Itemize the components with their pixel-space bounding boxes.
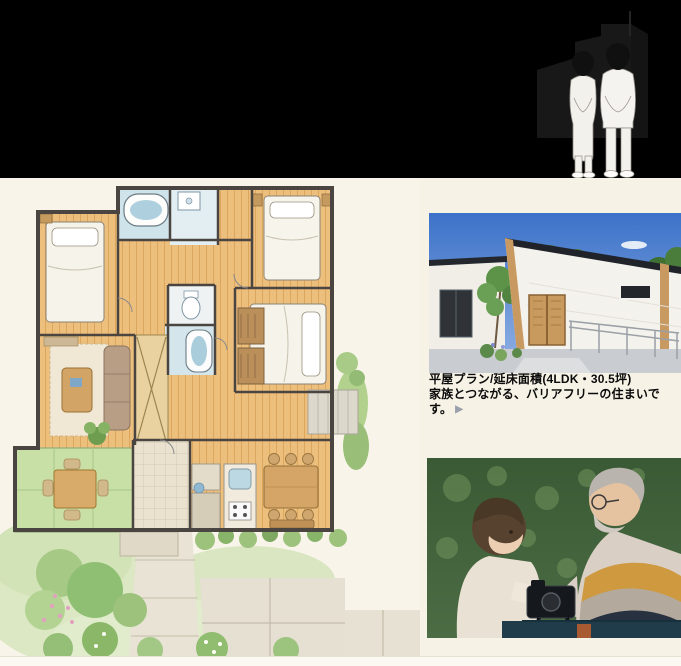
caption-line2: 家族とつながる、バリアフリーの住まいです。▶ [429, 387, 679, 418]
entrance-hall [133, 440, 190, 530]
caption-line1: 平屋プラン/延床面積(4LDK・30.5坪) [429, 372, 679, 387]
entry-steps [513, 358, 591, 373]
entrance-step [120, 532, 178, 556]
living-room [44, 337, 130, 445]
caption-arrow-icon: ▶ [455, 402, 463, 417]
elderly-couple-illustration [527, 6, 652, 178]
family-photo[interactable] [427, 458, 681, 638]
bench [502, 621, 681, 638]
bathroom-area [118, 188, 218, 245]
bedroom-mid-right [238, 304, 326, 384]
floor-plan-svg [0, 178, 420, 666]
kitchen [192, 464, 256, 530]
page-header [0, 0, 681, 178]
tatami-room [15, 448, 133, 532]
bag [577, 624, 591, 638]
family-photo-graphic [427, 458, 681, 638]
bedroom-top-right [252, 194, 331, 280]
exterior-photo-graphic [429, 213, 681, 373]
floor-plan-illustration [0, 178, 420, 666]
next-section-strip [0, 656, 681, 666]
couple-with-house-icon [527, 6, 652, 178]
storage-closet [135, 335, 168, 443]
plan-caption[interactable]: 平屋プラン/延床面積(4LDK・30.5坪) 家族とつながる、バリアフリーの住ま… [429, 372, 679, 418]
bedroom-left [40, 214, 104, 322]
second-bath [165, 325, 215, 375]
toilet-room [168, 285, 215, 325]
exterior-photo[interactable] [429, 213, 681, 373]
